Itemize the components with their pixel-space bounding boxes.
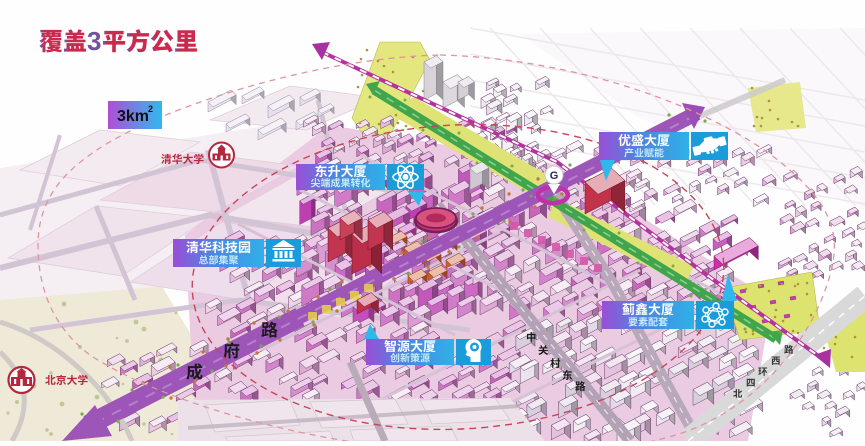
svg-text:3: 3 [87, 26, 101, 56]
svg-text:2: 2 [148, 104, 153, 114]
svg-text:G: G [550, 170, 559, 182]
svg-text:3km: 3km [117, 108, 149, 125]
